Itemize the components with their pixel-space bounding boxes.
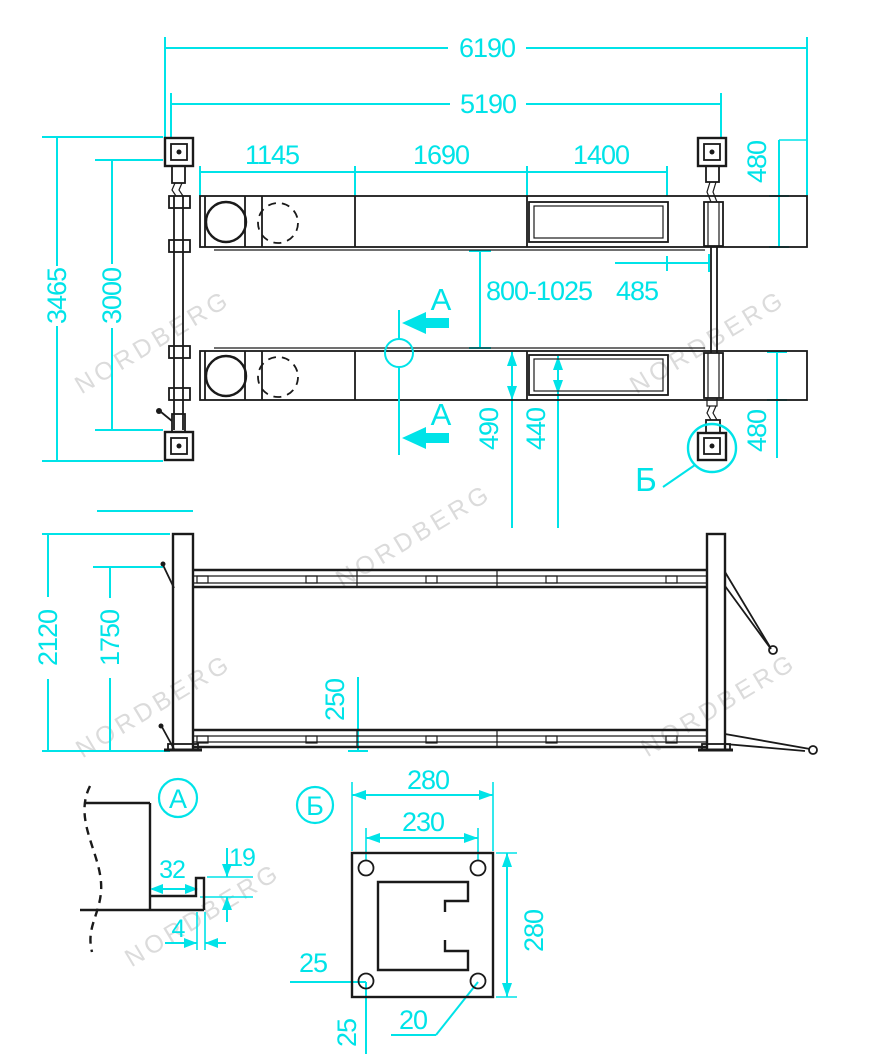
dim-text-4: 4 (172, 915, 186, 943)
dim-text-25-left: 25 (299, 948, 327, 978)
anchor-plate-top-right (698, 138, 726, 182)
dim-text-20: 20 (399, 1005, 427, 1035)
cylinder-circle-hidden (258, 203, 298, 243)
drive-on-ramp-raised (725, 572, 777, 654)
left-post (173, 534, 193, 750)
dim-runway-gap: 800-1025 (469, 251, 592, 348)
dim-wheel-stop-offset: 485 (615, 254, 709, 306)
plan-lower-runway (200, 348, 807, 400)
runway-lowered (193, 730, 707, 747)
dim-text-32: 32 (159, 856, 185, 884)
dim-lowered-height: 250 (320, 677, 368, 751)
dim-text-230: 230 (402, 807, 444, 837)
section-cut-circle (385, 339, 413, 367)
dim-inner-length: 5190 (171, 89, 721, 137)
dim-text-490: 490 (474, 408, 504, 450)
section-label-top: A (431, 282, 452, 317)
anchor-hole (359, 861, 374, 876)
brand-watermark: NORDBERG (636, 648, 802, 763)
dim-text-280-width: 280 (407, 765, 449, 795)
cylinder-circle-hidden (258, 357, 298, 397)
cylinder-circle (206, 202, 246, 242)
dim-inner-width: 3000 (95, 160, 163, 430)
brand-watermark: NORDBERG (120, 858, 286, 973)
dim-text-2120: 2120 (33, 610, 63, 666)
plan-upper-runway (200, 196, 807, 250)
dim-text-250: 250 (320, 679, 350, 721)
geometry-layer (80, 138, 817, 997)
dim-text-5190: 5190 (460, 89, 516, 119)
technical-drawing-page: NORDBERG NORDBERG NORDBERG NORDBERG NORD… (0, 0, 869, 1062)
break-line (84, 786, 101, 952)
dim-text-1400: 1400 (573, 140, 629, 170)
dim-ramp-width-rear: 480 (742, 352, 787, 458)
dim-ramp-width-front: 480 (742, 140, 806, 247)
dim-text-25-bottom: 25 (332, 1019, 362, 1047)
detail-b-base-plate (352, 853, 493, 997)
cable-hook-dot (156, 408, 162, 414)
cylinder-circle (206, 356, 246, 396)
section-label-bottom: A (431, 397, 452, 432)
brand-watermark: NORDBERG (70, 285, 236, 400)
post-channel-section (378, 882, 468, 970)
dim-text-280-height: 280 (519, 910, 549, 952)
dim-text-480-bottom: 480 (742, 410, 772, 452)
detail-a-label: A (169, 784, 187, 814)
dim-text-1145: 1145 (245, 140, 299, 170)
dim-text-6190: 6190 (459, 33, 515, 63)
drive-on-ramp-lowered (725, 734, 817, 754)
detail-b-title: Б (297, 787, 333, 823)
dim-text-1690: 1690 (413, 140, 469, 170)
anchor-plate-top-left (165, 138, 193, 196)
section-a-marker: A A (385, 282, 452, 455)
runway-raised (193, 570, 707, 587)
detail-a-title: A (159, 779, 197, 817)
dim-text-440: 440 (521, 408, 551, 450)
dim-text-19: 19 (229, 844, 255, 872)
anchor-hole (471, 974, 486, 989)
detail-b-label: Б (306, 791, 324, 821)
detail-b-dimensions: 280 230 280 25 25 20 (290, 765, 549, 1054)
dim-text-3465: 3465 (42, 268, 72, 324)
dim-text-800-1025: 800-1025 (486, 276, 592, 306)
dim-runway-segments: 1145 1690 1400 (200, 140, 667, 196)
dim-text-1750: 1750 (95, 610, 125, 666)
dim-text-480-top: 480 (742, 141, 772, 183)
detail-ref-label: Б (635, 461, 657, 498)
dim-text-485: 485 (616, 276, 658, 306)
anchor-plate-bottom-right (698, 398, 726, 460)
lift-drawing-svg: NORDBERG NORDBERG NORDBERG NORDBERG NORD… (0, 0, 869, 1062)
anchor-hole (471, 861, 486, 876)
dim-text-3000: 3000 (97, 268, 127, 324)
